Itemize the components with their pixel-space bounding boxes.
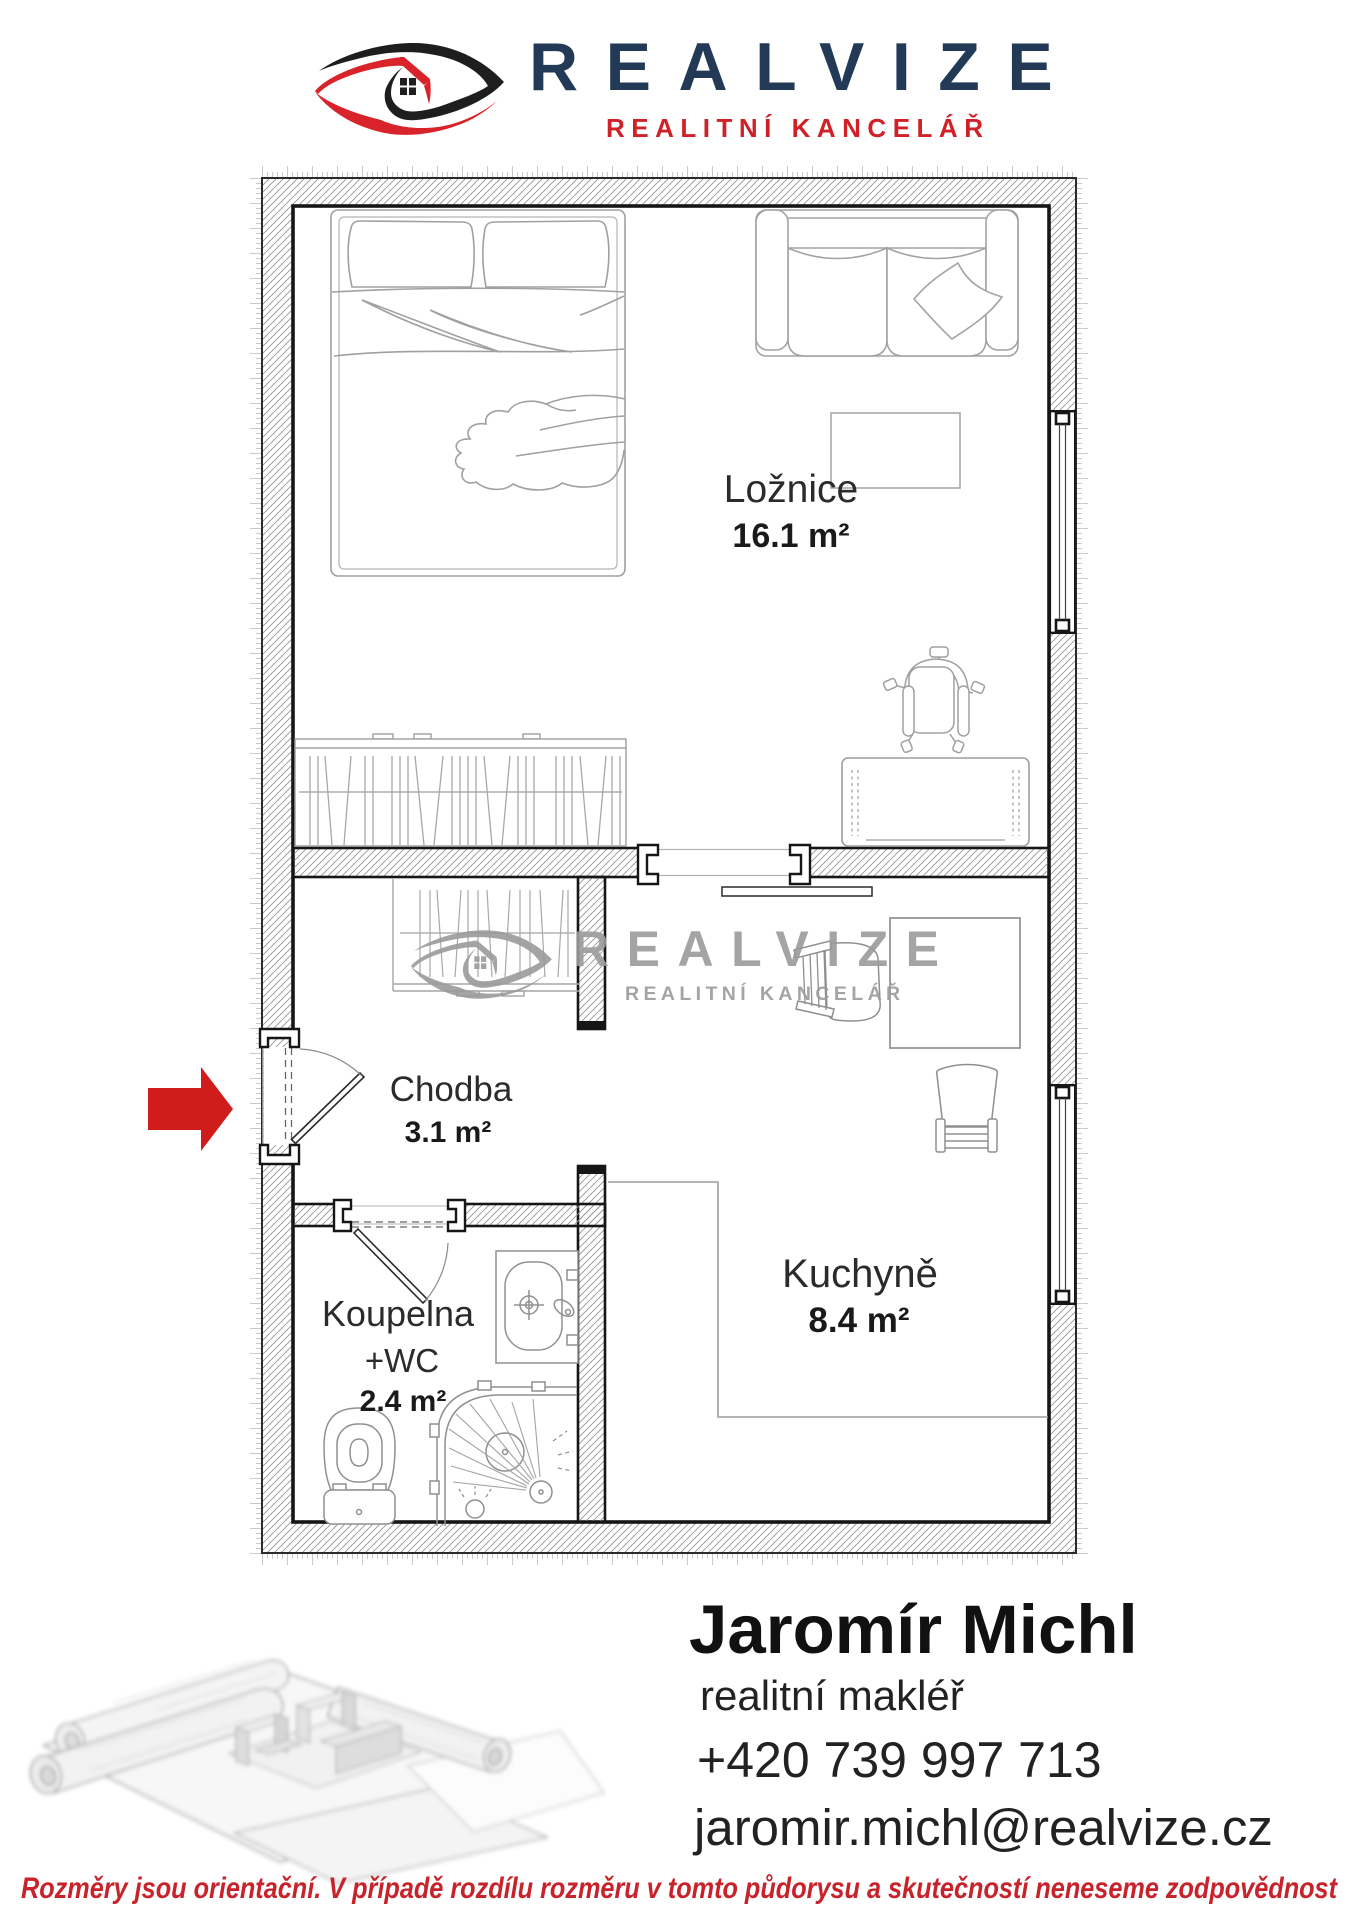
svg-text:REALITNÍ KANCELÁŘ: REALITNÍ KANCELÁŘ [625,981,905,1005]
svg-text:8.4 m²: 8.4 m² [808,1301,909,1340]
svg-text:Chodba: Chodba [390,1070,513,1109]
svg-text:2.4 m²: 2.4 m² [360,1385,447,1418]
svg-text:REALVIZE: REALVIZE [573,921,957,977]
svg-text:jaromir.michl@realvize.cz: jaromir.michl@realvize.cz [692,1799,1273,1856]
svg-text:+WC: +WC [365,1342,439,1379]
svg-text:16.1 m²: 16.1 m² [732,517,849,555]
svg-text:Kuchyně: Kuchyně [782,1252,938,1296]
svg-text:Koupelna: Koupelna [322,1293,475,1334]
svg-text:REALVIZE: REALVIZE [529,29,1080,105]
svg-text:3.1 m²: 3.1 m² [405,1116,492,1149]
svg-text:Jaromír Michl: Jaromír Michl [689,1591,1138,1668]
svg-text:Rozměry jsou orientační. V pří: Rozměry jsou orientační. V případě rozdí… [21,1872,1339,1905]
svg-text:+420 739 997 713: +420 739 997 713 [697,1732,1102,1788]
svg-text:realitní makléř: realitní makléř [700,1672,965,1719]
svg-text:Ložnice: Ložnice [724,468,858,511]
svg-text:REALITNÍ KANCELÁŘ: REALITNÍ KANCELÁŘ [606,113,990,143]
